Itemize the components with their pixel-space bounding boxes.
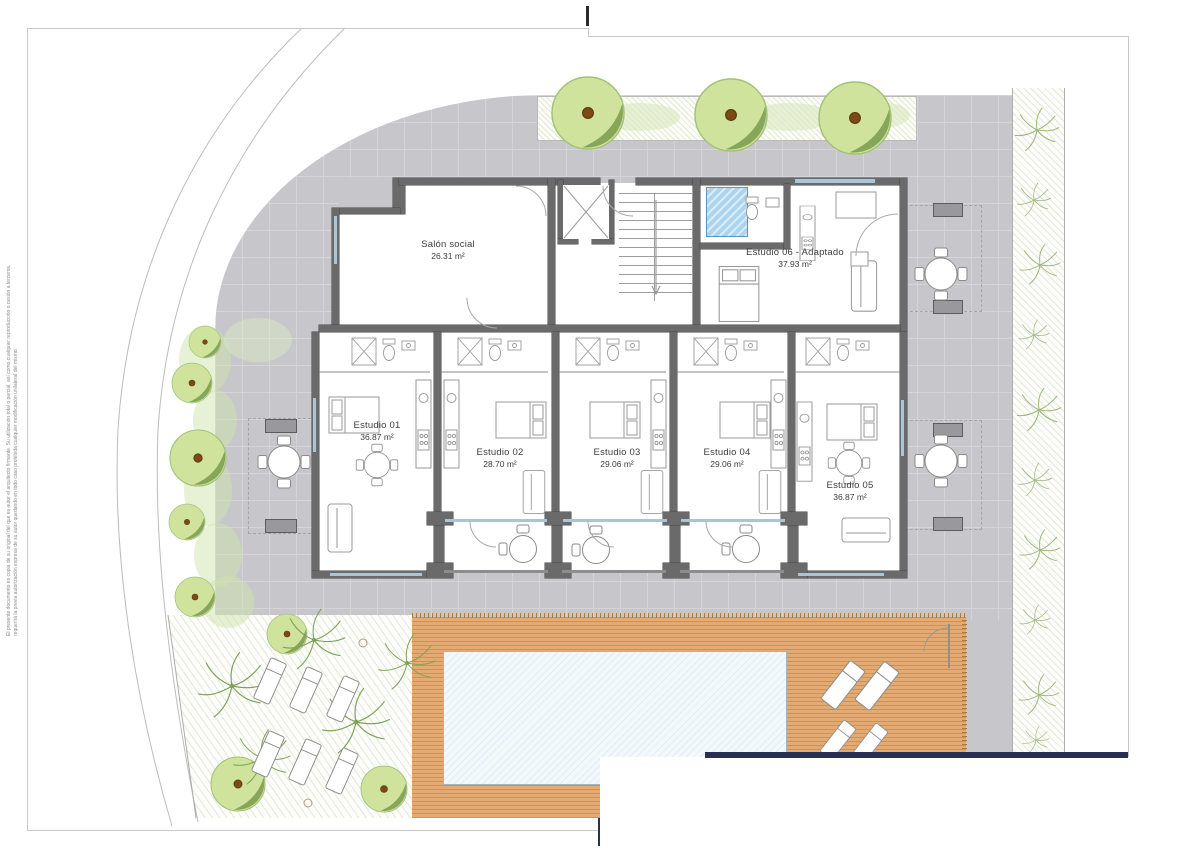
- room-label-estudio-02: Estudio 02 28.70 m²: [477, 447, 524, 469]
- lift-shaft-wall: [592, 239, 614, 244]
- wall-segment: [693, 178, 700, 332]
- planter-box: [933, 203, 963, 217]
- deck-edge-fringe: [412, 613, 966, 618]
- paved-walkway: [966, 620, 1012, 757]
- party-wall: [552, 332, 559, 520]
- lift-shaft-wall: [609, 180, 614, 244]
- room-label-estudio-06: Estudio 06 - Adaptado 37.93 m²: [746, 247, 844, 269]
- terrace-glazing: [330, 573, 422, 576]
- room-label-estudio-04: Estudio 04 29.06 m²: [704, 447, 751, 469]
- lift-shaft-wall: [558, 239, 578, 244]
- plot-boundary-line: [705, 752, 1128, 758]
- sheet-frame: [1128, 36, 1129, 757]
- room-area: 26.31 m²: [421, 251, 475, 261]
- wall-segment: [332, 208, 400, 214]
- room-label-estudio-03: Estudio 03 29.06 m²: [594, 447, 641, 469]
- room-area: 36.87 m²: [827, 492, 874, 502]
- room-area: 29.06 m²: [704, 459, 751, 469]
- entry-niche: [339, 178, 393, 208]
- terrace-glazing: [445, 519, 547, 522]
- terrace-balustrade: [444, 570, 548, 573]
- copyright-note-line1: El presente documento es copia de su ori…: [6, 36, 13, 636]
- room-area: 28.70 m²: [477, 459, 524, 469]
- room-name: Estudio 05: [827, 480, 874, 491]
- top-planter-bed: [537, 96, 917, 141]
- planter-box: [265, 519, 297, 533]
- room-label-estudio-01: Estudio 01 36.87 m²: [354, 420, 401, 442]
- terrace-balustrade: [562, 570, 666, 573]
- copyright-note-line2: requerirá la previa autorización expresa…: [13, 36, 20, 636]
- room-label-estudio-05: Estudio 05 36.87 m²: [827, 480, 874, 502]
- room-name: Estudio 02: [477, 447, 524, 458]
- room-area: 36.87 m²: [354, 432, 401, 442]
- room-area: 37.93 m²: [746, 259, 844, 269]
- adapted-shower: [706, 187, 748, 237]
- stair-stringer: [654, 193, 655, 301]
- window: [313, 398, 316, 452]
- wall-segment: [312, 332, 319, 578]
- sheet-frame: [27, 830, 600, 831]
- tree-icon: [169, 504, 205, 540]
- sheet-clip: [600, 757, 1200, 848]
- window: [795, 179, 875, 183]
- fold-mark: [586, 6, 589, 26]
- wall-segment: [900, 178, 907, 332]
- terrace-estudio-01: [248, 418, 316, 534]
- room-name: Estudio 04: [704, 447, 751, 458]
- room-name: Estudio 01: [354, 420, 401, 431]
- wall-segment: [319, 325, 900, 332]
- copyright-note: El presente documento es copia de su ori…: [6, 36, 20, 636]
- room-name: Estudio 03: [594, 447, 641, 458]
- terrace-estudio-06: [905, 205, 982, 312]
- staircase: [619, 193, 692, 301]
- room-name: Salón social: [421, 239, 475, 250]
- room-label-salon-social: Salón social 26.31 m²: [421, 239, 475, 261]
- bathroom-wall: [784, 184, 790, 249]
- deck-edge-fringe: [962, 617, 967, 757]
- planter-box: [933, 517, 963, 531]
- terrace-glazing: [681, 519, 785, 522]
- party-wall: [434, 332, 441, 520]
- floor-plan-sheet: Salón social 26.31 m² Estudio 06 - Adapt…: [0, 0, 1200, 848]
- room-name: Estudio 06 - Adaptado: [746, 247, 844, 258]
- party-wall: [670, 332, 677, 520]
- planter-box: [933, 300, 963, 314]
- sheet-frame: [27, 28, 28, 831]
- window: [334, 216, 337, 264]
- wall-segment: [548, 178, 555, 332]
- sheet-frame: [27, 28, 588, 29]
- terrace-glazing: [563, 519, 667, 522]
- plot-boundary-tick: [598, 818, 600, 846]
- right-green-strip: [1012, 88, 1065, 757]
- planter-box: [265, 419, 297, 433]
- room-area: 29.06 m²: [594, 459, 641, 469]
- planter-box: [933, 423, 963, 437]
- landscaped-garden: [168, 615, 412, 818]
- party-wall: [788, 332, 795, 520]
- sheet-frame: [588, 36, 1128, 37]
- terrace-glazing: [798, 573, 884, 576]
- tree-icon: [172, 363, 212, 403]
- tree-icon: [175, 577, 215, 617]
- terrace-balustrade: [680, 570, 784, 573]
- wall-segment: [399, 178, 555, 185]
- window: [901, 400, 904, 456]
- elevator: [563, 185, 609, 239]
